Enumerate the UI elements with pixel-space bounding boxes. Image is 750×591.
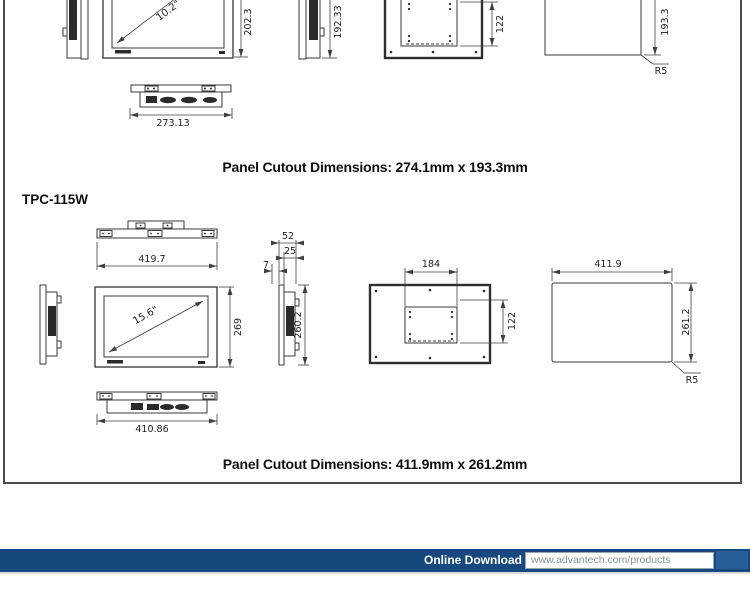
dim-top-width: 419.7 [97,242,217,270]
panel-cutout-caption-2: Panel Cutout Dimensions: 411.9mm x 261.2… [0,456,750,472]
dim-vesa-width: 184 [405,259,457,306]
dim-label: 202.3 [243,8,254,35]
dim-bottom-width: 273.13 [130,108,232,129]
dim-label: 184 [422,259,440,270]
front-view: 15.6" [95,287,217,367]
panel-cutout-caption-1: Panel Cutout Dimensions: 274.1mm x 193.3… [0,159,750,175]
footer-accent-block [716,551,748,569]
cutout-view: 411.9 261.2 R5 [552,259,701,386]
dim-side-height: 192.33 [322,0,344,58]
dim-label: 260.2 [293,311,304,338]
online-download-label: Online Download [424,553,522,567]
dim-label: 192.33 [333,5,344,38]
bottom-view [131,85,231,107]
dim-label: 419.7 [138,254,165,265]
front-view: 10.2" [103,0,233,58]
footer-url: www.advantech.com/products [525,552,714,569]
corner-radius-label: R5 [655,66,668,77]
dim-label: 410.86 [135,424,168,435]
tpc-115w-drawings: 419.7 15.6" 269 [0,186,750,482]
rear-view [370,285,490,363]
dim-label: 261.2 [681,308,692,335]
diagonal-size-label: 10.2" [154,0,182,23]
dim-label: 193.3 [660,8,671,35]
dim-label: 411.9 [594,259,621,270]
dim-depths: 52 25 7 260.2 [263,231,309,365]
side-view [63,0,88,59]
datasheet-page: 10.2" 202.3 192.33 [0,0,750,591]
dim-label: 7 [263,260,269,271]
side-view-2 [299,0,324,59]
dim-label: 273.13 [156,118,189,129]
diagonal-size-label: 15.6" [131,304,160,327]
dim-label: 25 [284,246,296,257]
dim-front-height: 269 [219,287,244,367]
bottom-view [97,392,217,413]
cutout-view: R5 193.3 [545,0,671,77]
rear-view [385,0,482,58]
dim-bottom-width: 410.86 [97,414,217,435]
side-view-left [40,285,61,364]
dim-label: 269 [233,318,244,336]
dim-label: 52 [282,231,294,242]
dim-label: 122 [495,15,506,33]
top-view [97,221,217,238]
corner-radius-label: R5 [686,375,699,386]
footer-bar: Online Download www.advantech.com/produc… [0,549,750,574]
dim-label: 122 [507,312,518,330]
dim-front-height: 202.3 [234,0,254,57]
